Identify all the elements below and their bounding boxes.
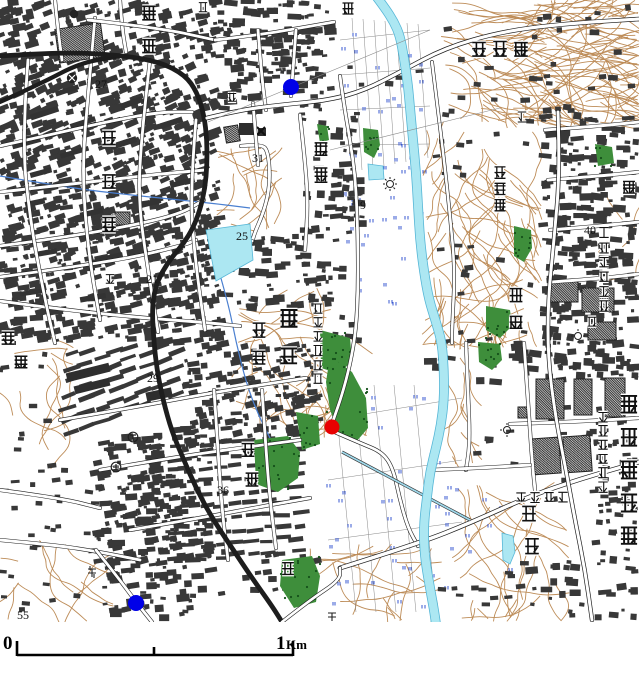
svg-text:40: 40 (584, 223, 596, 237)
svg-text:1: 1 (276, 633, 286, 654)
svg-text:Km: Km (286, 637, 307, 652)
svg-text:9: 9 (360, 198, 366, 212)
svg-text:27: 27 (95, 77, 107, 91)
svg-text:21: 21 (146, 272, 158, 286)
svg-text:29: 29 (147, 371, 159, 385)
svg-text:55: 55 (17, 608, 29, 622)
svg-text:0: 0 (3, 633, 13, 654)
svg-text:25: 25 (236, 229, 248, 243)
svg-text:36: 36 (217, 483, 229, 497)
svg-text:31: 31 (252, 151, 264, 165)
